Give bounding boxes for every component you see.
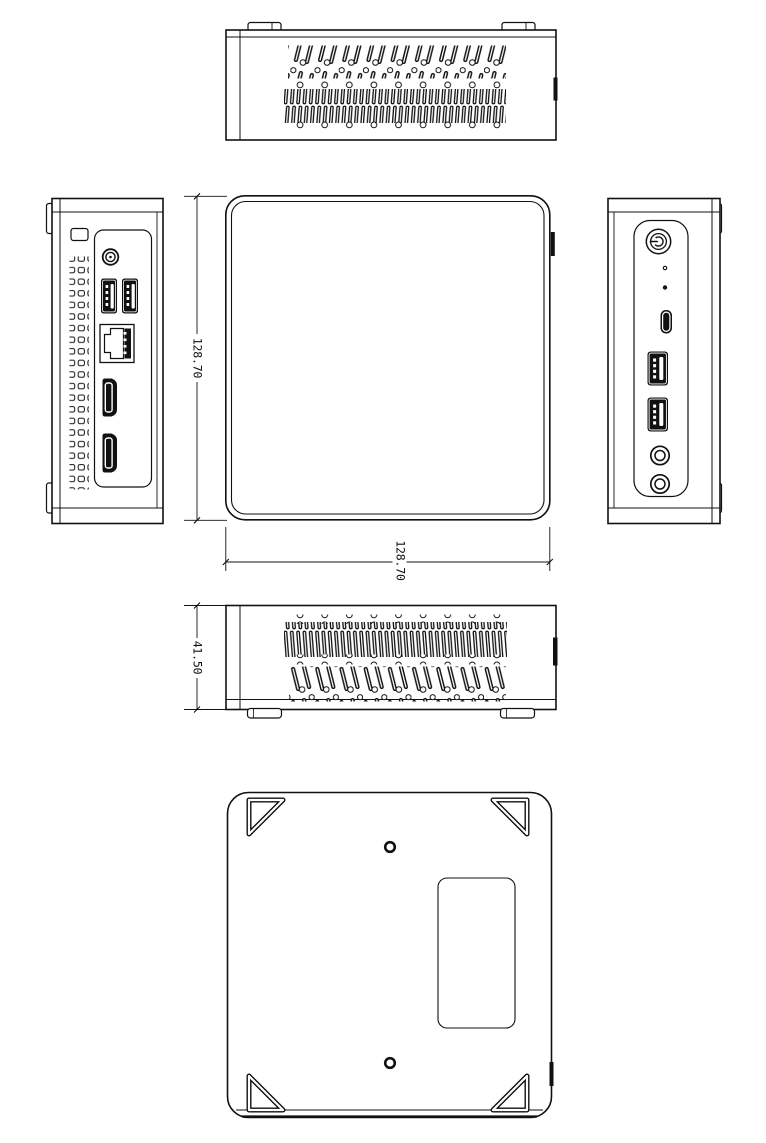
dimension-device-height: 41.50 bbox=[184, 603, 227, 713]
hdmi-port bbox=[103, 379, 118, 417]
side-latch bbox=[554, 78, 558, 101]
vent-grille bbox=[284, 46, 506, 132]
usb-a-port bbox=[648, 352, 669, 386]
usb-a-port bbox=[648, 398, 669, 432]
usb-a-port bbox=[122, 279, 138, 314]
top-edge-view bbox=[226, 23, 558, 141]
dimension-label-device-height: 41.50 bbox=[191, 641, 205, 675]
dimension-label-width: 128.70 bbox=[394, 540, 408, 581]
vent-holes bbox=[70, 257, 90, 490]
kensington-lock-slot bbox=[71, 229, 88, 241]
dimension-height: 128.70 bbox=[184, 193, 227, 523]
mic-hole bbox=[663, 285, 667, 289]
hdmi-port bbox=[103, 434, 118, 473]
rubber-foot bbox=[248, 709, 282, 719]
bottom-face-view bbox=[228, 793, 554, 1118]
front-port-view bbox=[608, 199, 722, 524]
side-latch bbox=[553, 638, 558, 666]
chassis-outline bbox=[226, 196, 550, 520]
usb-c-port bbox=[661, 310, 673, 334]
rubber-foot bbox=[501, 709, 535, 719]
ethernet-port bbox=[100, 325, 134, 363]
dimension-label-height: 128.70 bbox=[191, 338, 205, 379]
technical-drawing-canvas: 128.70 128.70 bbox=[0, 0, 766, 1143]
bottom-edge-view bbox=[226, 606, 558, 719]
access-panel bbox=[438, 878, 515, 1028]
usb-a-port bbox=[101, 279, 117, 314]
rear-port-view bbox=[47, 199, 164, 524]
dimension-width: 128.70 bbox=[223, 527, 553, 583]
side-latch bbox=[551, 232, 555, 256]
vent-grille bbox=[284, 615, 507, 702]
side-latch bbox=[550, 1062, 554, 1086]
led-indicator bbox=[663, 266, 666, 269]
top-face-view bbox=[226, 196, 555, 520]
